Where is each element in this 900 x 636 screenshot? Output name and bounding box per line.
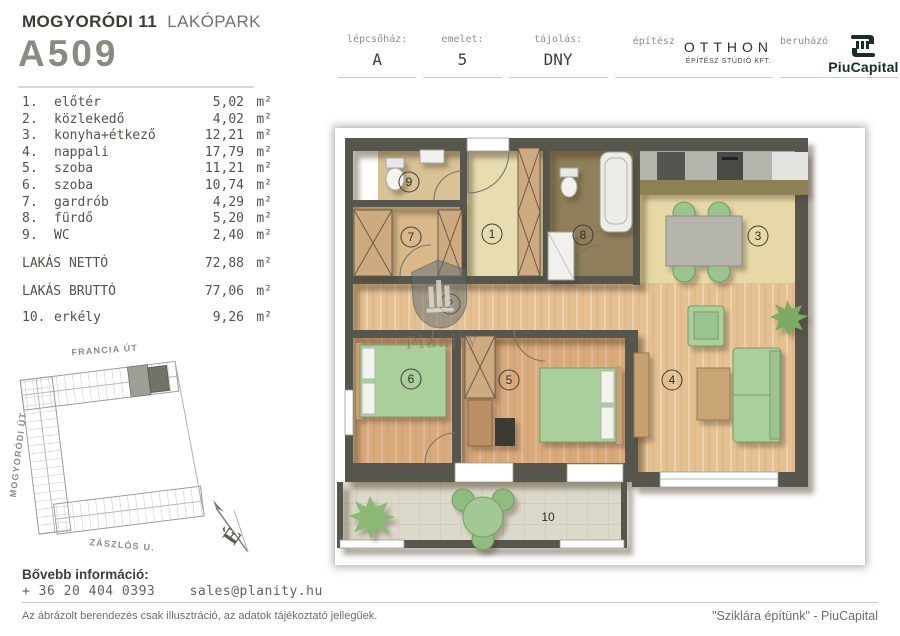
info-bar: lépcsőház: A emelet: 5 tájolás: DNY épít…: [338, 33, 898, 78]
room-unit: m²: [244, 228, 272, 245]
room-area: 10,74: [198, 178, 244, 195]
room-area: 4,02: [198, 112, 244, 129]
bathtub-icon: [600, 152, 632, 232]
kitchen-counter-icon: [640, 152, 808, 195]
net-area: 72,88: [198, 256, 244, 273]
room-area: 5,02: [198, 95, 244, 112]
net-area-row: LAKÁS NETTÓ 72,88 m²: [22, 256, 272, 273]
room-unit: m²: [244, 161, 272, 178]
room-num: 4.: [22, 145, 54, 162]
watermark-text: Planity: [405, 330, 480, 354]
bed-icon: [540, 366, 622, 444]
developer-logo: PiuCapital: [828, 34, 898, 75]
project-name-bold: MOGYORÓDI 11: [22, 12, 157, 31]
room-area: 11,21: [198, 161, 244, 178]
room-label-10: 10: [541, 510, 555, 524]
orientation-label: tájolás:: [534, 34, 582, 45]
window-bedroom5: [567, 464, 623, 482]
toilet-icon: [560, 168, 578, 197]
balcony-row: 10. erkély 9,26 m²: [22, 310, 272, 327]
email-address[interactable]: sales@planity.hu: [190, 584, 323, 599]
room-row-5: 5. szoba 11,21 m²: [22, 161, 272, 178]
balcony-railing-right: [560, 540, 624, 548]
room-num: 5.: [22, 161, 54, 178]
room-unit: m²: [244, 178, 272, 195]
gross-area: 77,06: [198, 284, 244, 301]
svg-text:4: 4: [669, 373, 676, 387]
sink-icon: [420, 150, 444, 163]
svg-text:8: 8: [580, 228, 587, 242]
armchair-icon: [688, 306, 724, 346]
staircase-label: lépcsőház:: [347, 34, 407, 45]
street-label-bottom: ZÁSZLÓS U.: [89, 536, 155, 553]
orientation-cell: tájolás: DNY: [509, 33, 608, 78]
wardrobe-icon: [518, 148, 540, 276]
room-unit: m²: [244, 128, 272, 145]
street-label-top: FRANCIA ÚT: [71, 342, 138, 358]
unit-id: A509: [18, 33, 118, 75]
gross-unit: m²: [244, 284, 272, 301]
compass-letter: É: [217, 523, 246, 549]
staircase-cell: lépcsőház: A: [338, 33, 416, 78]
room-num: 2.: [22, 112, 54, 129]
north-arrow-icon: É: [213, 500, 248, 552]
room-row-2: 2. közlekedő 4,02 m²: [22, 112, 272, 129]
room-row-7: 7. gardrób 4,29 m²: [22, 195, 272, 212]
room-area: 17,79: [198, 145, 244, 162]
building-outline: [20, 360, 204, 536]
orientation-value: DNY: [544, 50, 573, 69]
room-num: 6.: [22, 178, 54, 195]
svg-text:1: 1: [489, 227, 496, 241]
architect-label: építész: [633, 36, 675, 47]
architect-subtitle: ÉPÍTÉSZ STÚDIÓ KFT.: [684, 58, 773, 65]
room-row-9: 9. WC 2,40 m²: [22, 228, 272, 245]
room-unit: m²: [244, 145, 272, 162]
toilet-icon: [386, 158, 404, 190]
room-area: 4,29: [198, 195, 244, 212]
street-label-left: MOGYORÓDI ÚT: [10, 411, 28, 498]
balcony-num: 10.: [22, 310, 54, 327]
slogan-text: "Sziklára építünk" - PiuCapital: [712, 609, 878, 623]
architect-cell: építész OTTHON ÉPÍTÉSZ STÚDIÓ KFT.: [615, 33, 774, 78]
room-area: 12,21: [198, 128, 244, 145]
site-location-map: FRANCIA ÚT MOGYORÓDI ÚT ZÁSZLÓS U. É: [10, 340, 266, 573]
window-bedroom6: [345, 390, 353, 435]
room-num: 3.: [22, 128, 54, 145]
svg-text:7: 7: [408, 230, 415, 244]
room-area: 2,40: [198, 228, 244, 245]
room-name: előtér: [54, 95, 198, 112]
page-title: MOGYORÓDI 11 LAKÓPARK: [22, 12, 261, 32]
room-name: gardrób: [54, 195, 198, 212]
sideboard-icon: [634, 353, 649, 437]
room-row-6: 6. szoba 10,74 m²: [22, 178, 272, 195]
tv-stand-icon: [495, 418, 515, 446]
footer-info-label: Bővebb információ:: [22, 567, 149, 582]
room-num: 1.: [22, 95, 54, 112]
room-num: 7.: [22, 195, 54, 212]
floor-label: emelet:: [441, 34, 483, 45]
entry-door-gap: [467, 138, 509, 151]
footer-divider: [22, 602, 878, 603]
room-unit: m²: [244, 211, 272, 228]
svg-text:5: 5: [506, 373, 513, 387]
room-area-list: 1. előtér 5,02 m² 2. közlekedő 4,02 m² 3…: [22, 95, 272, 326]
highlighted-unit-marker-dark: [148, 365, 170, 392]
room-num: 8.: [22, 211, 54, 228]
room-num: 9.: [22, 228, 54, 245]
coffee-table-icon: [697, 368, 730, 420]
room-name: nappali: [54, 145, 198, 162]
balcony-area: 9,26: [198, 310, 244, 327]
room-row-1: 1. előtér 5,02 m²: [22, 95, 272, 112]
room-name: közlekedő: [54, 112, 198, 129]
developer-cell: beruházó PiuCapital: [780, 33, 898, 78]
developer-name: PiuCapital: [828, 59, 898, 75]
room-area: 5,20: [198, 211, 244, 228]
room-name: fürdő: [54, 211, 198, 228]
architect-logo: OTTHON ÉPÍTÉSZ STÚDIÓ KFT.: [684, 39, 773, 65]
sofa-icon: [733, 348, 781, 442]
shower-icon: [548, 232, 574, 280]
project-name-light: LAKÓPARK: [167, 12, 261, 31]
balcony-railing-left: [340, 540, 404, 548]
room-row-8: 8. fürdő 5,20 m²: [22, 211, 272, 228]
footer-contact: + 36 20 404 0393 sales@planity.hu: [22, 584, 323, 599]
net-label: LAKÁS NETTÓ: [22, 256, 198, 273]
floor-value: 5: [458, 50, 468, 69]
floor-plan: 1 2 3 4 5 6 7 8 9 10 Planity: [335, 128, 865, 565]
room-name: szoba: [54, 161, 198, 178]
svg-text:9: 9: [406, 175, 413, 189]
disclaimer-text: Az ábrázolt berendezés csak illusztráció…: [22, 610, 377, 622]
room-unit: m²: [244, 95, 272, 112]
svg-text:3: 3: [755, 229, 762, 243]
desk-icon: [468, 400, 492, 446]
unit-id-divider: [18, 86, 254, 88]
net-unit: m²: [244, 256, 272, 273]
room-name: WC: [54, 228, 198, 245]
gross-label: LAKÁS BRUTTÓ: [22, 284, 198, 301]
architect-name: OTTHON: [684, 39, 773, 55]
room-name: konyha+étkező: [54, 128, 198, 145]
balcony-door: [455, 463, 513, 482]
floor-cell: emelet: 5: [423, 33, 501, 78]
balcony-name: erkély: [54, 310, 198, 327]
room-row-3: 3. konyha+étkező 12,21 m²: [22, 128, 272, 145]
room-name: szoba: [54, 178, 198, 195]
room-row-4: 4. nappali 17,79 m²: [22, 145, 272, 162]
piucapital-column-icon: [848, 34, 878, 58]
floor-hallway: [345, 283, 640, 333]
room-unit: m²: [244, 112, 272, 129]
developer-label: beruházó: [780, 36, 828, 47]
balcony-unit: m²: [244, 310, 272, 327]
svg-text:6: 6: [408, 372, 415, 386]
staircase-value: A: [372, 50, 382, 69]
room-unit: m²: [244, 195, 272, 212]
gross-area-row: LAKÁS BRUTTÓ 77,06 m²: [22, 284, 272, 301]
phone-number: + 36 20 404 0393: [22, 584, 155, 599]
